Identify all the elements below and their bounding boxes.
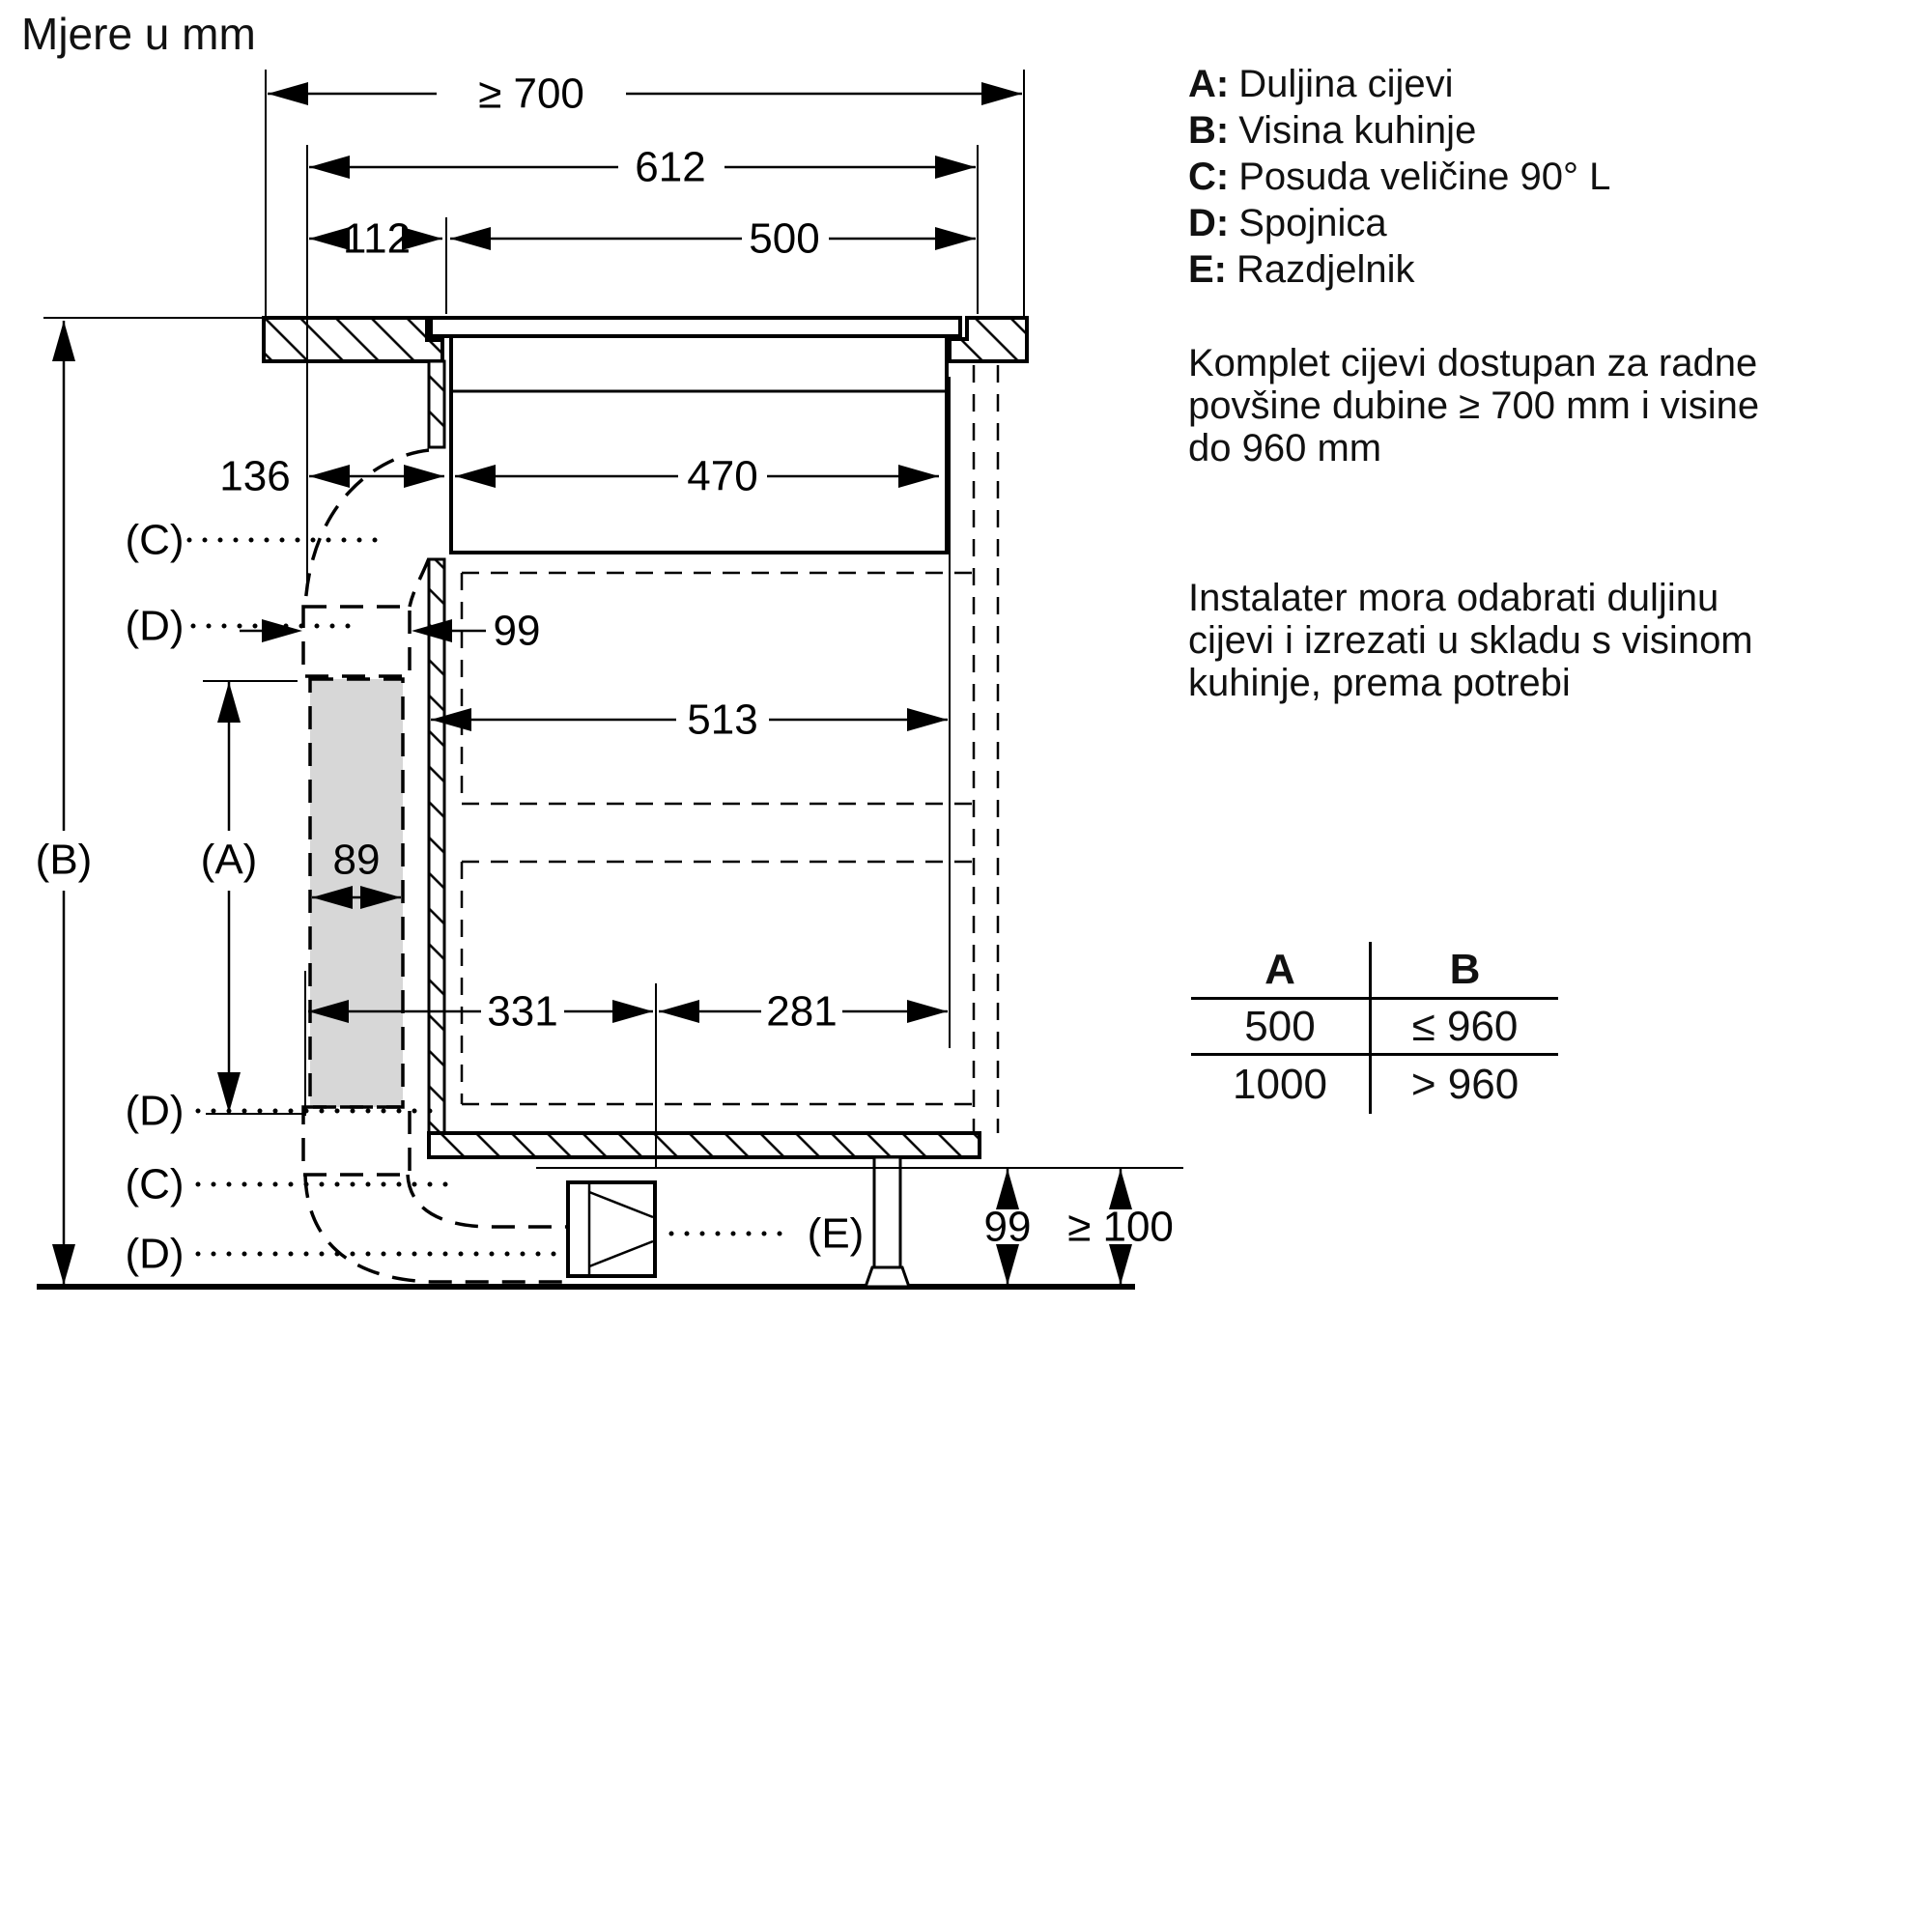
callout-c-lower: (C) <box>125 1161 184 1208</box>
legend-label-d: Spojnica <box>1238 202 1386 244</box>
legend-item-a: A:Duljina cijevi <box>1188 61 1610 107</box>
worktop-left-section <box>264 318 442 361</box>
dim-cutout-width-label: 500 <box>749 215 819 263</box>
dim-rear-gap-label: 136 <box>219 453 290 500</box>
duct-elbow-top-inner <box>410 558 429 607</box>
size-table-cell: > 960 <box>1372 1056 1558 1114</box>
size-table-header-a: A <box>1191 942 1372 1000</box>
note-installer-line3: kuhinje, prema potrebi <box>1188 662 1753 704</box>
cabinet-bottom-panel <box>429 1133 980 1157</box>
note-pipe-kit-line2: povšine dubine ≥ 700 mm i visine <box>1188 384 1759 427</box>
note-pipe-kit-line3: do 960 mm <box>1188 427 1759 469</box>
legend-key-d: D: <box>1188 202 1229 244</box>
legend-label-e: Razdjelnik <box>1236 248 1415 291</box>
callout-b: (B) <box>36 837 93 884</box>
cabinet-interior-box-lower <box>462 862 974 1104</box>
callout-d-middle: (D) <box>125 1088 184 1135</box>
dim-floor-clearance-label: ≥ 100 <box>1067 1204 1174 1251</box>
dim-duct-offset-front-label: 331 <box>487 988 557 1036</box>
dim-hob-body-width-label: 470 <box>687 453 757 500</box>
legend-key-a: A: <box>1188 63 1229 105</box>
size-table-header-b: B <box>1372 942 1558 1000</box>
callout-d-lower: (D) <box>125 1231 184 1278</box>
note-installer-line2: cijevi i izrezati u skladu s visinom <box>1188 619 1753 662</box>
size-table-cell: 1000 <box>1191 1056 1372 1114</box>
legend-item-b: B:Visina kuhinje <box>1188 107 1610 154</box>
size-table-cell: 500 <box>1191 1000 1372 1056</box>
duct-connector-bottom <box>303 1107 410 1175</box>
hob-body <box>451 336 947 553</box>
dim-cabinet-inner-depth-label: 513 <box>687 696 757 744</box>
legend-item-c: C:Posuda veličine 90° L <box>1188 154 1610 200</box>
callout-d-upper: (D) <box>125 603 184 650</box>
installation-diagram: ≥ 700 612 112 500 136 470 99 513 89 331 … <box>0 0 1932 1932</box>
adjustable-foot <box>866 1157 909 1287</box>
dim-connector-width-label: 99 <box>494 608 541 655</box>
legend-label-c: Posuda veličine 90° L <box>1238 156 1610 198</box>
dim-duct-offset-rear-label: 281 <box>766 988 837 1036</box>
note-pipe-kit: Komplet cijevi dostupan za radne povšine… <box>1188 342 1759 469</box>
mounting-frame-upper <box>429 361 444 447</box>
note-pipe-kit-line1: Komplet cijevi dostupan za radne <box>1188 342 1759 384</box>
callout-e: (E) <box>808 1210 865 1258</box>
legend-label-b: Visina kuhinje <box>1238 109 1476 152</box>
dim-plinth-duct-height-label: 99 <box>984 1204 1032 1251</box>
callout-a: (A) <box>201 837 258 884</box>
dim-worktop-depth-label: ≥ 700 <box>478 71 584 118</box>
note-installer: Instalater mora odabrati duljinu cijevi … <box>1188 577 1753 704</box>
legend-item-d: D:Spojnica <box>1188 200 1610 246</box>
size-table-cell: ≤ 960 <box>1372 1000 1558 1056</box>
air-splitter-box <box>568 1182 655 1276</box>
dim-hob-width-label: 612 <box>635 144 705 191</box>
duct-vertical-section <box>310 679 403 1107</box>
duct-connector-top <box>303 607 410 676</box>
size-table: A B 500 ≤ 960 1000 > 960 <box>1191 942 1558 1114</box>
callout-c-upper: (C) <box>125 517 184 564</box>
cabinet-side-panel <box>974 365 998 1133</box>
legend: A:Duljina cijevi B:Visina kuhinje C:Posu… <box>1188 61 1610 293</box>
dimension-lines <box>64 94 1121 1285</box>
hob-glass-top <box>431 318 960 336</box>
legend-label-a: Duljina cijevi <box>1238 63 1453 105</box>
legend-key-e: E: <box>1188 248 1227 291</box>
page: Mjere u mm <box>0 0 1932 1932</box>
duct-elbow-bottom-outer <box>305 1175 566 1282</box>
dim-duct-width-label: 89 <box>333 837 381 884</box>
legend-item-e: E:Razdjelnik <box>1188 246 1610 293</box>
legend-key-c: C: <box>1188 156 1229 198</box>
legend-key-b: B: <box>1188 109 1229 152</box>
dim-front-offset-label: 112 <box>343 215 411 263</box>
note-installer-line1: Instalater mora odabrati duljinu <box>1188 577 1753 619</box>
mounting-frame-lower <box>429 559 444 1133</box>
